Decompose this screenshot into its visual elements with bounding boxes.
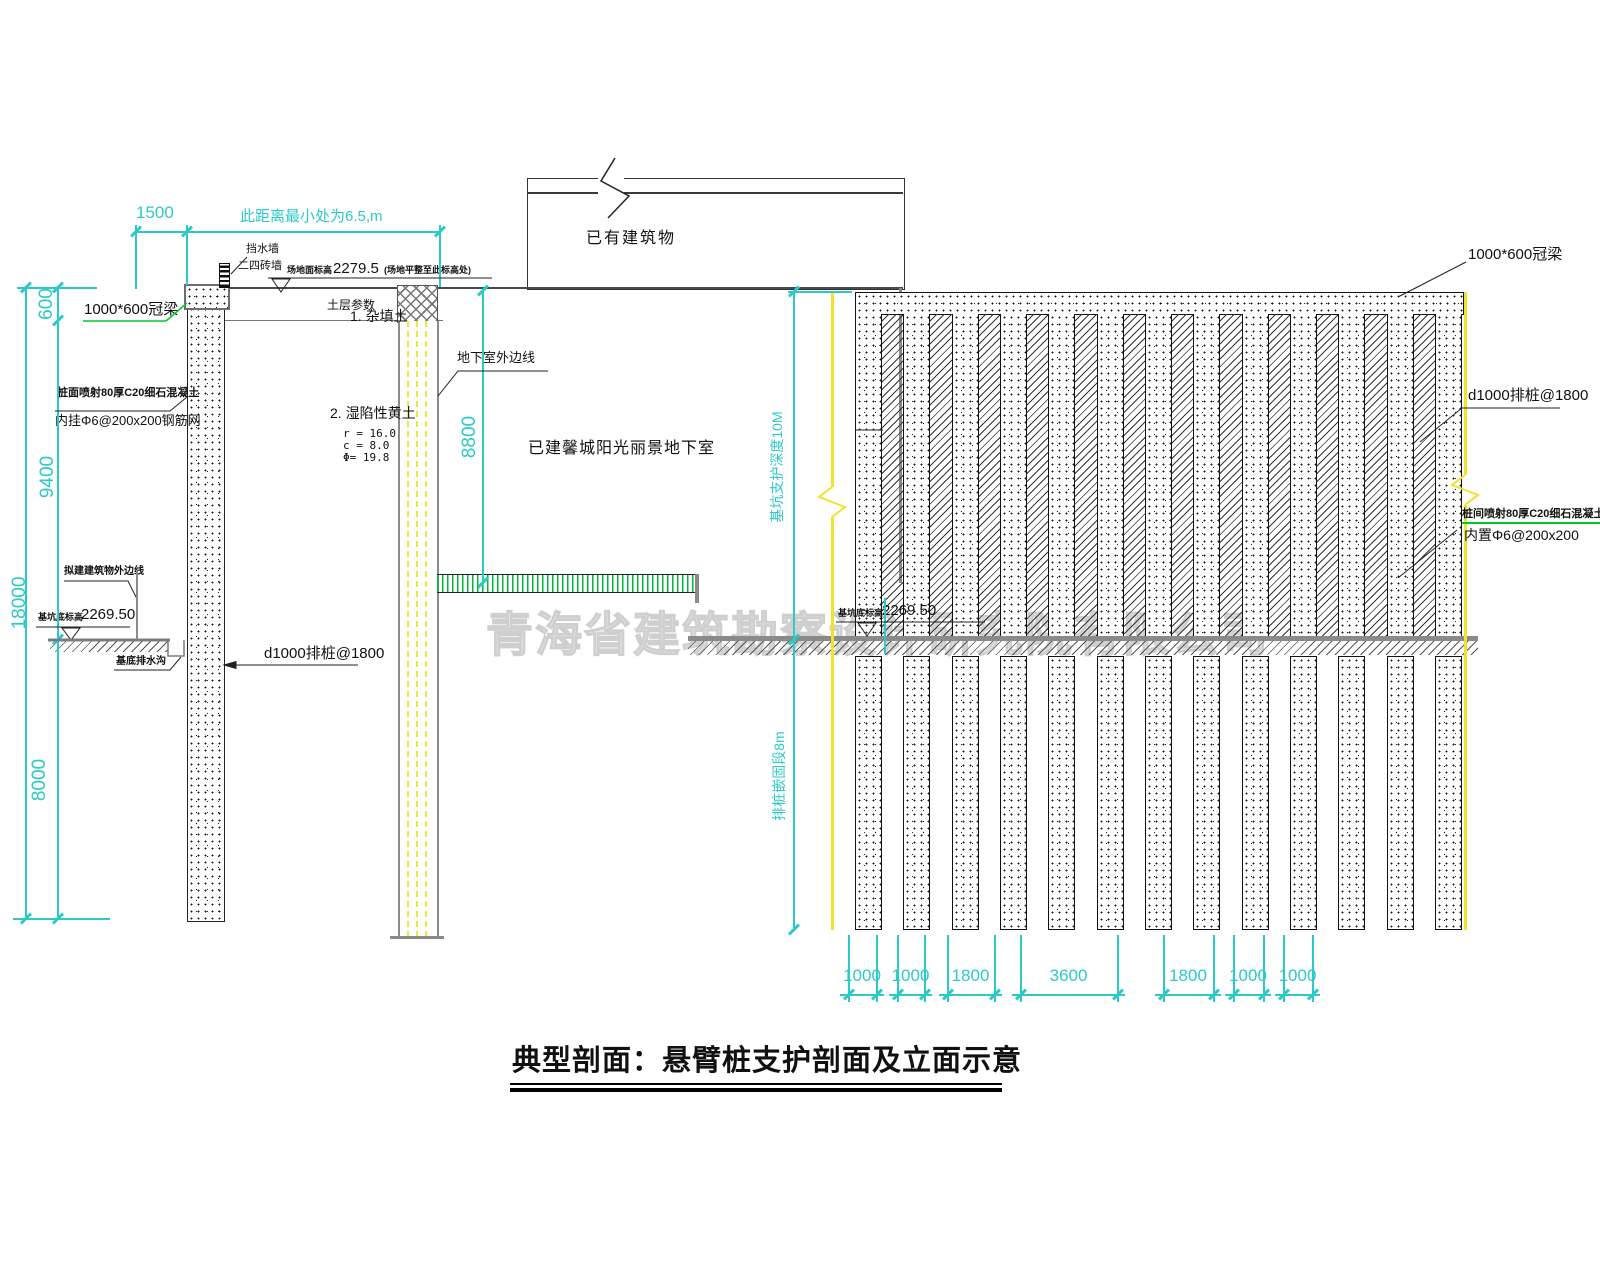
ground-line xyxy=(227,287,903,289)
dim-9400: 9400 xyxy=(37,417,59,537)
pile-bar-embedded xyxy=(855,656,882,930)
soil-hatch-bar xyxy=(882,314,903,637)
pile-bar xyxy=(903,314,930,637)
pile-bar-embedded xyxy=(1145,656,1172,930)
pile-bar-embedded xyxy=(1000,656,1027,930)
soil-hatch-bar xyxy=(1027,314,1048,637)
drain-ditch-shape xyxy=(168,640,184,656)
crown-beam-label: 1000*600冠梁 xyxy=(84,302,178,319)
pit-bottom-hatch xyxy=(50,641,168,652)
pile-bar-embedded xyxy=(903,656,930,930)
water-wall-label: 挡水墙 xyxy=(246,243,279,255)
pile-bar-embedded xyxy=(1290,656,1317,930)
bottom-dim-label: 3600 xyxy=(1034,966,1104,986)
water-wall-bar xyxy=(219,263,230,288)
dim-8800: 8800 xyxy=(459,377,481,497)
pile-bar xyxy=(1000,314,1027,637)
match-line-right xyxy=(1464,505,1467,930)
dim-line-top xyxy=(135,231,440,233)
site-elev-suffix: (场地平整至此标高处) xyxy=(384,266,471,276)
pile-bar xyxy=(1290,314,1317,637)
bottom-dim-label: 1000 xyxy=(1263,966,1333,986)
basement-floor-strip xyxy=(437,574,697,593)
soil-hatch-bar xyxy=(1172,314,1193,637)
shotcrete-leader xyxy=(55,397,187,411)
soil-hatch-bar xyxy=(1124,314,1145,637)
cad-drawing-canvas: 已有建筑物 已建馨城阳光丽景地下室 土层参数 1. 杂填土 2. 湿陷性黄土 r… xyxy=(0,0,1600,1280)
brick-wall-label: 二四砖墙 xyxy=(238,260,282,272)
pile-bar xyxy=(1338,314,1365,637)
pile-bar-embedded xyxy=(952,656,979,930)
pile-label-left: d1000排桩@1800 xyxy=(264,646,384,663)
dim-line-left-chain xyxy=(57,288,59,920)
pile-bar xyxy=(1387,314,1414,637)
pile-bar xyxy=(1193,314,1220,637)
soil-hatch-bar xyxy=(979,314,1000,637)
pile-bar xyxy=(1097,314,1124,637)
basement-edge-label: 地下室外边线 xyxy=(457,351,535,365)
crown-beam-elevation xyxy=(855,292,1464,315)
soil-layer2-label: 2. 湿陷性黄土 xyxy=(330,406,416,421)
match-line-break-icon xyxy=(819,487,845,517)
wall-dash-line xyxy=(416,321,418,937)
soil-hatch-bar xyxy=(1365,314,1387,637)
site-elev-marker-icon xyxy=(272,279,290,292)
wall-dash-line xyxy=(425,321,427,937)
elevation-lower-zone xyxy=(855,656,1464,930)
dim-line-bottom xyxy=(1012,994,1125,996)
pile-bar-embedded xyxy=(1338,656,1365,930)
soil-hatch-bar xyxy=(1414,314,1435,637)
soil-hatch-bar xyxy=(930,314,952,637)
drain-label: 基底排水沟 xyxy=(116,656,166,667)
existing-building-inner-line xyxy=(527,192,903,194)
dim-connector xyxy=(788,291,852,293)
pile-bar xyxy=(1048,314,1075,637)
pile-bar-embedded xyxy=(1097,656,1124,930)
existing-basement-label: 已建馨城阳光丽景地下室 xyxy=(528,440,715,458)
dim-8000: 8000 xyxy=(29,720,51,840)
shotcrete-right-1: 桩间喷射80厚C20细石混凝土 xyxy=(1462,508,1600,524)
pile-section xyxy=(187,284,225,922)
basement-edge-leader xyxy=(438,371,548,396)
drawing-title: 典型剖面：悬臂桩支护剖面及立面示意 xyxy=(512,1046,1022,1078)
pile-bar xyxy=(1242,314,1269,637)
crown-beam-label-right: 1000*600冠梁 xyxy=(1468,247,1562,264)
existing-building-label: 已有建筑物 xyxy=(586,230,676,248)
soil-hatch-bar xyxy=(1075,314,1097,637)
dim-embed-8m: 排桩嵌固段8m xyxy=(769,701,789,851)
match-line-right xyxy=(1464,292,1467,475)
pile-bar-embedded xyxy=(1387,656,1414,930)
shotcrete-label-1: 桩面喷射80厚C20细石混凝土 xyxy=(57,387,199,399)
site-elev-prefix: 场地面标高 xyxy=(287,266,332,276)
building-outline-leader xyxy=(64,581,137,599)
shotcrete-label-2: 内挂Φ6@200x200钢筋网 xyxy=(55,414,201,428)
dim-line-8800 xyxy=(482,290,484,583)
pile-bar-embedded xyxy=(1242,656,1269,930)
pile-bar xyxy=(952,314,979,637)
soil-phi-value: Φ= 19.8 xyxy=(343,452,389,464)
elev-marker-leader xyxy=(884,598,886,654)
pile-bar-embedded xyxy=(1193,656,1220,930)
pit-elev-prefix: 基坑底标高 xyxy=(38,613,83,623)
soil-layer1-label: 1. 杂填土 xyxy=(350,309,408,324)
dim-600: 600 xyxy=(36,244,58,364)
dim-18000: 18000 xyxy=(9,543,31,663)
title-underline-thick xyxy=(510,1088,1002,1092)
dim-ext xyxy=(135,225,137,289)
elev-pit-elev-prefix: 基坑底标高 xyxy=(838,609,883,619)
pile-bar-embedded xyxy=(1435,656,1462,930)
bottom-dim-label: 1800 xyxy=(936,966,1006,986)
pile-leader-arrow xyxy=(224,662,236,669)
shotcrete-right-2: 内置Φ6@200x200 xyxy=(1464,528,1579,543)
elevation-ground-hatch xyxy=(688,641,1478,655)
soil-hatch-bar xyxy=(1220,314,1242,637)
soil-hatch-bar xyxy=(1317,314,1338,637)
pile-bar xyxy=(1145,314,1172,637)
elev-pit-elev-value: 2269.50 xyxy=(882,603,936,620)
dim-1500: 1500 xyxy=(136,203,174,223)
pile-bar xyxy=(1435,314,1462,637)
building-outline-label: 拟建建筑物外边线 xyxy=(64,566,144,577)
soil-hatch-bar xyxy=(1269,314,1290,637)
match-line-left xyxy=(831,517,834,930)
pile-bar-embedded xyxy=(1048,656,1075,930)
dim-depth-10m: 基坑支护深度10M xyxy=(767,392,787,542)
dim-line-elevation xyxy=(793,292,795,930)
match-line-left xyxy=(831,292,834,487)
pile-label-right: d1000排桩@1800 xyxy=(1468,388,1588,405)
title-underline-thin xyxy=(510,1083,1002,1085)
pit-elev-value: 2269.50 xyxy=(81,607,135,624)
pile-bar xyxy=(855,314,882,637)
dim-top-note: 此距离最小处为6.5,m xyxy=(240,205,383,226)
site-elev-value: 2279.5 xyxy=(333,261,379,278)
existing-building-box xyxy=(527,178,905,290)
pit-elev-marker-icon xyxy=(62,628,80,640)
wall-bottom-line xyxy=(390,936,444,939)
elevation-upper-zone xyxy=(855,314,1464,637)
